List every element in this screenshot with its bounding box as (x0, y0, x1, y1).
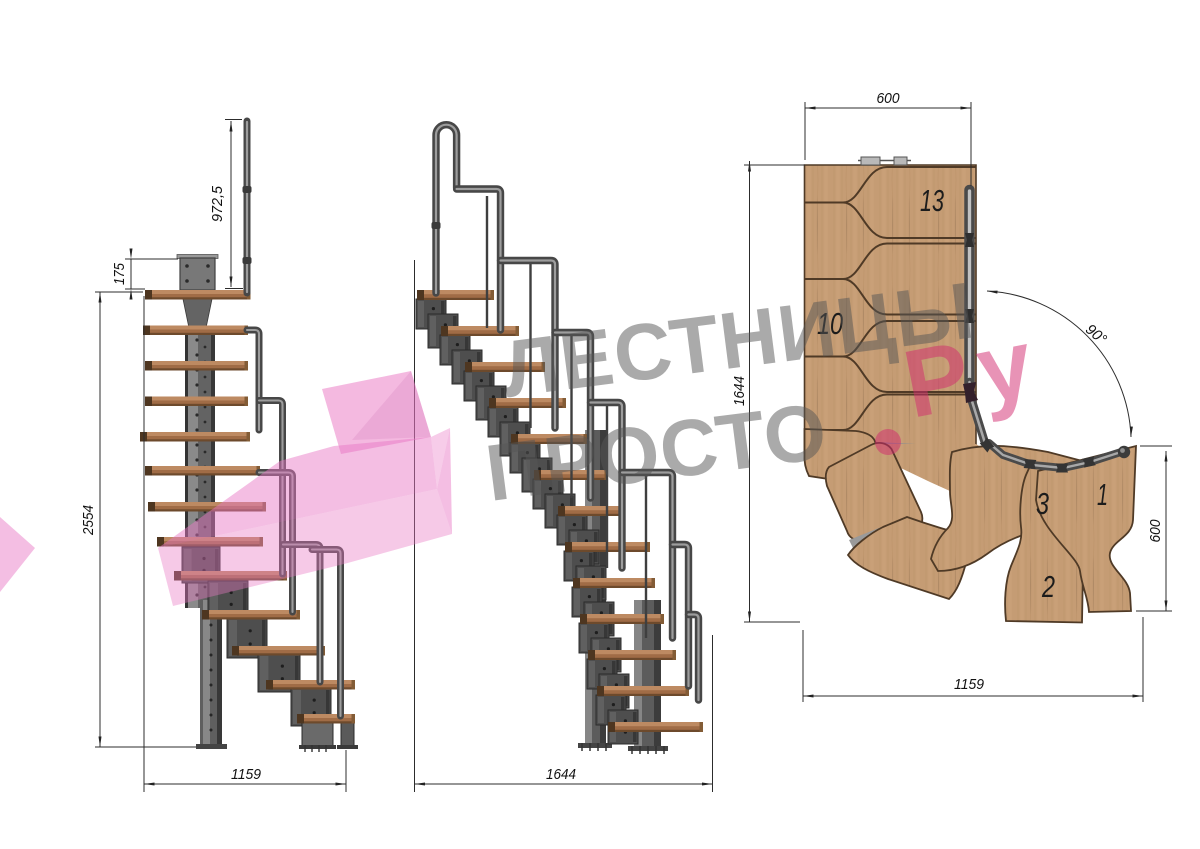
svg-text:600: 600 (1147, 519, 1164, 543)
svg-text:1644: 1644 (546, 766, 576, 783)
svg-text:600: 600 (877, 90, 901, 107)
svg-text:2554: 2554 (80, 505, 97, 536)
svg-text:13: 13 (920, 183, 944, 218)
svg-text:2: 2 (1041, 569, 1055, 604)
svg-text:3: 3 (1036, 486, 1049, 521)
svg-text:1159: 1159 (231, 766, 262, 783)
svg-text:175: 175 (112, 262, 128, 285)
svg-text:1159: 1159 (954, 676, 985, 693)
svg-text:1: 1 (1097, 477, 1108, 512)
svg-text:972,5: 972,5 (209, 185, 226, 222)
